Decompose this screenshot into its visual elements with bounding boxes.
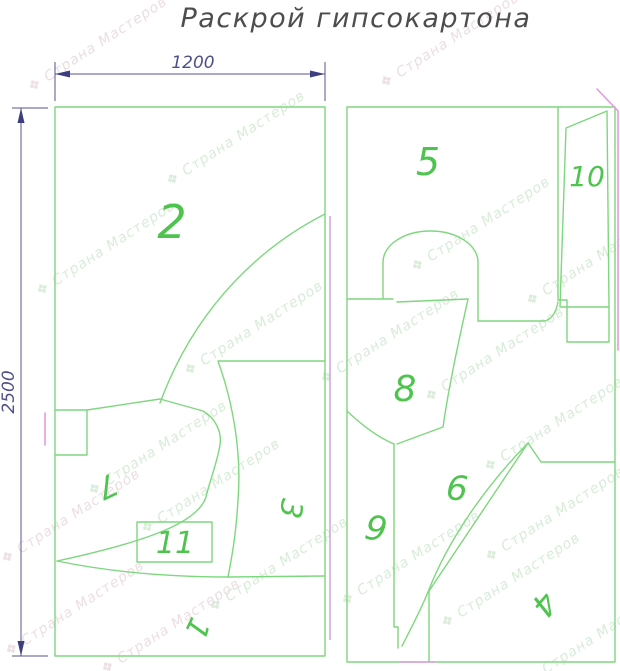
piece-label-6: 6	[444, 468, 469, 510]
watermark-text: ❖ Страна Мастеров	[98, 576, 243, 671]
piece-8-bottom-curve	[347, 411, 394, 444]
watermark-text: ❖ Страна Мастеров	[523, 208, 620, 310]
piece-9-edge	[394, 444, 398, 648]
watermark-text: ❖ Страна Мастеров	[25, 0, 170, 96]
page-title: Раскрой гипсокартона	[181, 3, 532, 34]
watermark-text: ❖ Страна Мастеров	[2, 558, 147, 660]
watermark-text: ❖ Страна Мастеров	[317, 286, 462, 388]
cutting-diagram-page: ❖ Страна Мастеров❖ Страна Мастеров❖ Стра…	[0, 0, 620, 671]
height-dimension-value: 2500	[0, 370, 19, 413]
piece-label-11: 11	[156, 526, 194, 561]
dim-arrow-right-icon	[310, 71, 325, 78]
left-sheet	[55, 107, 325, 656]
piece-label-5: 5	[416, 140, 440, 184]
width-dimension-value: 1200	[171, 53, 214, 73]
piece-label-3: 3	[271, 496, 309, 521]
watermark-text: ❖ Страна Мастеров	[408, 174, 553, 276]
left-notch-rect	[55, 410, 87, 455]
piece-label-2: 2	[157, 195, 186, 249]
piece-label-10: 10	[569, 160, 605, 193]
watermark-text: ❖ Страна Мастеров	[181, 278, 326, 380]
height-dimension: 2500	[0, 108, 48, 656]
piece-label-4: 4	[523, 584, 565, 624]
watermark-text: ❖ Страна Мастеров	[338, 508, 483, 610]
dim-arrow-up-icon	[18, 108, 25, 123]
left-sheet-outline	[55, 107, 325, 656]
watermark-text: ❖ Страна Мастеров	[163, 88, 308, 190]
watermark-text: ❖ Страна Мастеров	[422, 304, 567, 406]
watermark-layer: ❖ Страна Мастеров❖ Страна Мастеров❖ Стра…	[0, 0, 620, 671]
piece-label-1: 1	[177, 612, 217, 644]
watermark-text: ❖ Страна Мастеров	[481, 374, 620, 476]
piece-label-9: 9	[362, 508, 390, 551]
piece-label-8: 8	[394, 369, 417, 410]
diagonal-line	[429, 443, 528, 662]
cutting-diagram: ❖ Страна Мастеров❖ Страна Мастеров❖ Стра…	[0, 0, 620, 671]
width-dimension: 1200	[55, 53, 325, 101]
piece-4-top	[528, 443, 615, 462]
